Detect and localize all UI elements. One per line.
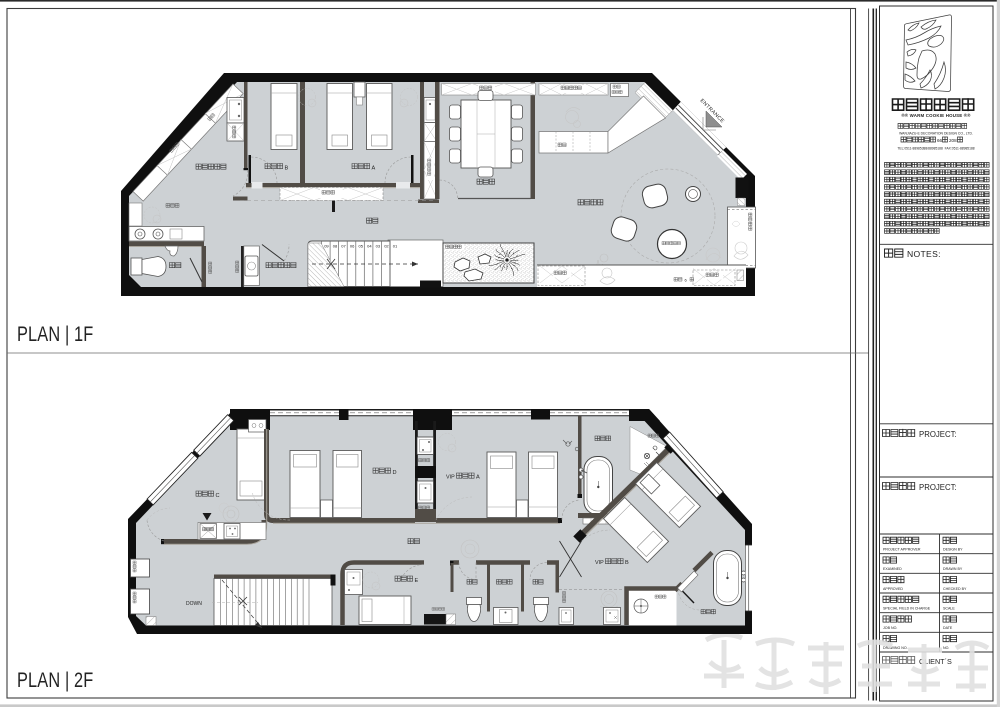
svg-text:07: 07 xyxy=(341,244,346,249)
svg-text:01: 01 xyxy=(393,244,398,249)
svg-text:PROJECT:: PROJECT: xyxy=(919,483,957,492)
svg-text:B: B xyxy=(625,560,629,566)
svg-text:NO.: NO. xyxy=(943,646,949,650)
svg-text:D: D xyxy=(393,470,397,476)
svg-text:EXAMINED: EXAMINED xyxy=(883,567,902,571)
svg-text:DESIGN BY: DESIGN BY xyxy=(943,548,963,552)
svg-text:A: A xyxy=(372,166,376,172)
svg-text:05: 05 xyxy=(359,244,364,249)
svg-text:06: 06 xyxy=(350,244,355,249)
svg-text:208: 208 xyxy=(949,138,957,143)
svg-text:TEL:0511-88985388/88985188 FA: TEL:0511-88985388/88985188 FAX:0511-8898… xyxy=(897,147,974,151)
svg-text:DRAWN BY: DRAWN BY xyxy=(943,567,963,571)
svg-text:VIP: VIP xyxy=(446,475,455,481)
svg-text:PROJECT:: PROJECT: xyxy=(919,430,957,439)
svg-text:PROJECT APPROVER: PROJECT APPROVER xyxy=(883,548,921,552)
svg-text:VIP: VIP xyxy=(595,560,604,566)
svg-text:08: 08 xyxy=(333,244,338,249)
svg-text:PLAN | 2F: PLAN | 2F xyxy=(17,669,93,693)
svg-text:NOTES:: NOTES: xyxy=(907,249,941,259)
svg-text:SCALE: SCALE xyxy=(943,607,955,611)
svg-text:PLAN | 1F: PLAN | 1F xyxy=(17,323,93,347)
svg-text:04: 04 xyxy=(367,244,372,249)
svg-text:03: 03 xyxy=(376,244,381,249)
svg-text:APPROVED: APPROVED xyxy=(883,587,903,591)
svg-text:DATE: DATE xyxy=(943,626,953,630)
svg-text:66: 66 xyxy=(937,138,943,143)
svg-text:DOWN: DOWN xyxy=(186,601,202,607)
svg-text:09: 09 xyxy=(324,244,329,249)
svg-text:®® WARM COOKIE HOUSE ®®: ®® WARM COOKIE HOUSE ®® xyxy=(901,113,971,118)
svg-text:CHECKED BY: CHECKED BY xyxy=(943,587,967,591)
svg-text:JOB NO.: JOB NO. xyxy=(883,626,897,630)
svg-text:E: E xyxy=(415,578,419,584)
svg-text:C: C xyxy=(216,493,220,499)
svg-text:A: A xyxy=(476,475,480,481)
svg-text:SPECIAL FIELD IN CHARGE: SPECIAL FIELD IN CHARGE xyxy=(883,607,931,611)
svg-text:WANJIAZU-E DECORATION DESIGN C: WANJIAZU-E DECORATION DESIGN CO., LTD. xyxy=(899,132,973,136)
svg-text:02: 02 xyxy=(384,244,389,249)
svg-text:B: B xyxy=(285,166,289,172)
